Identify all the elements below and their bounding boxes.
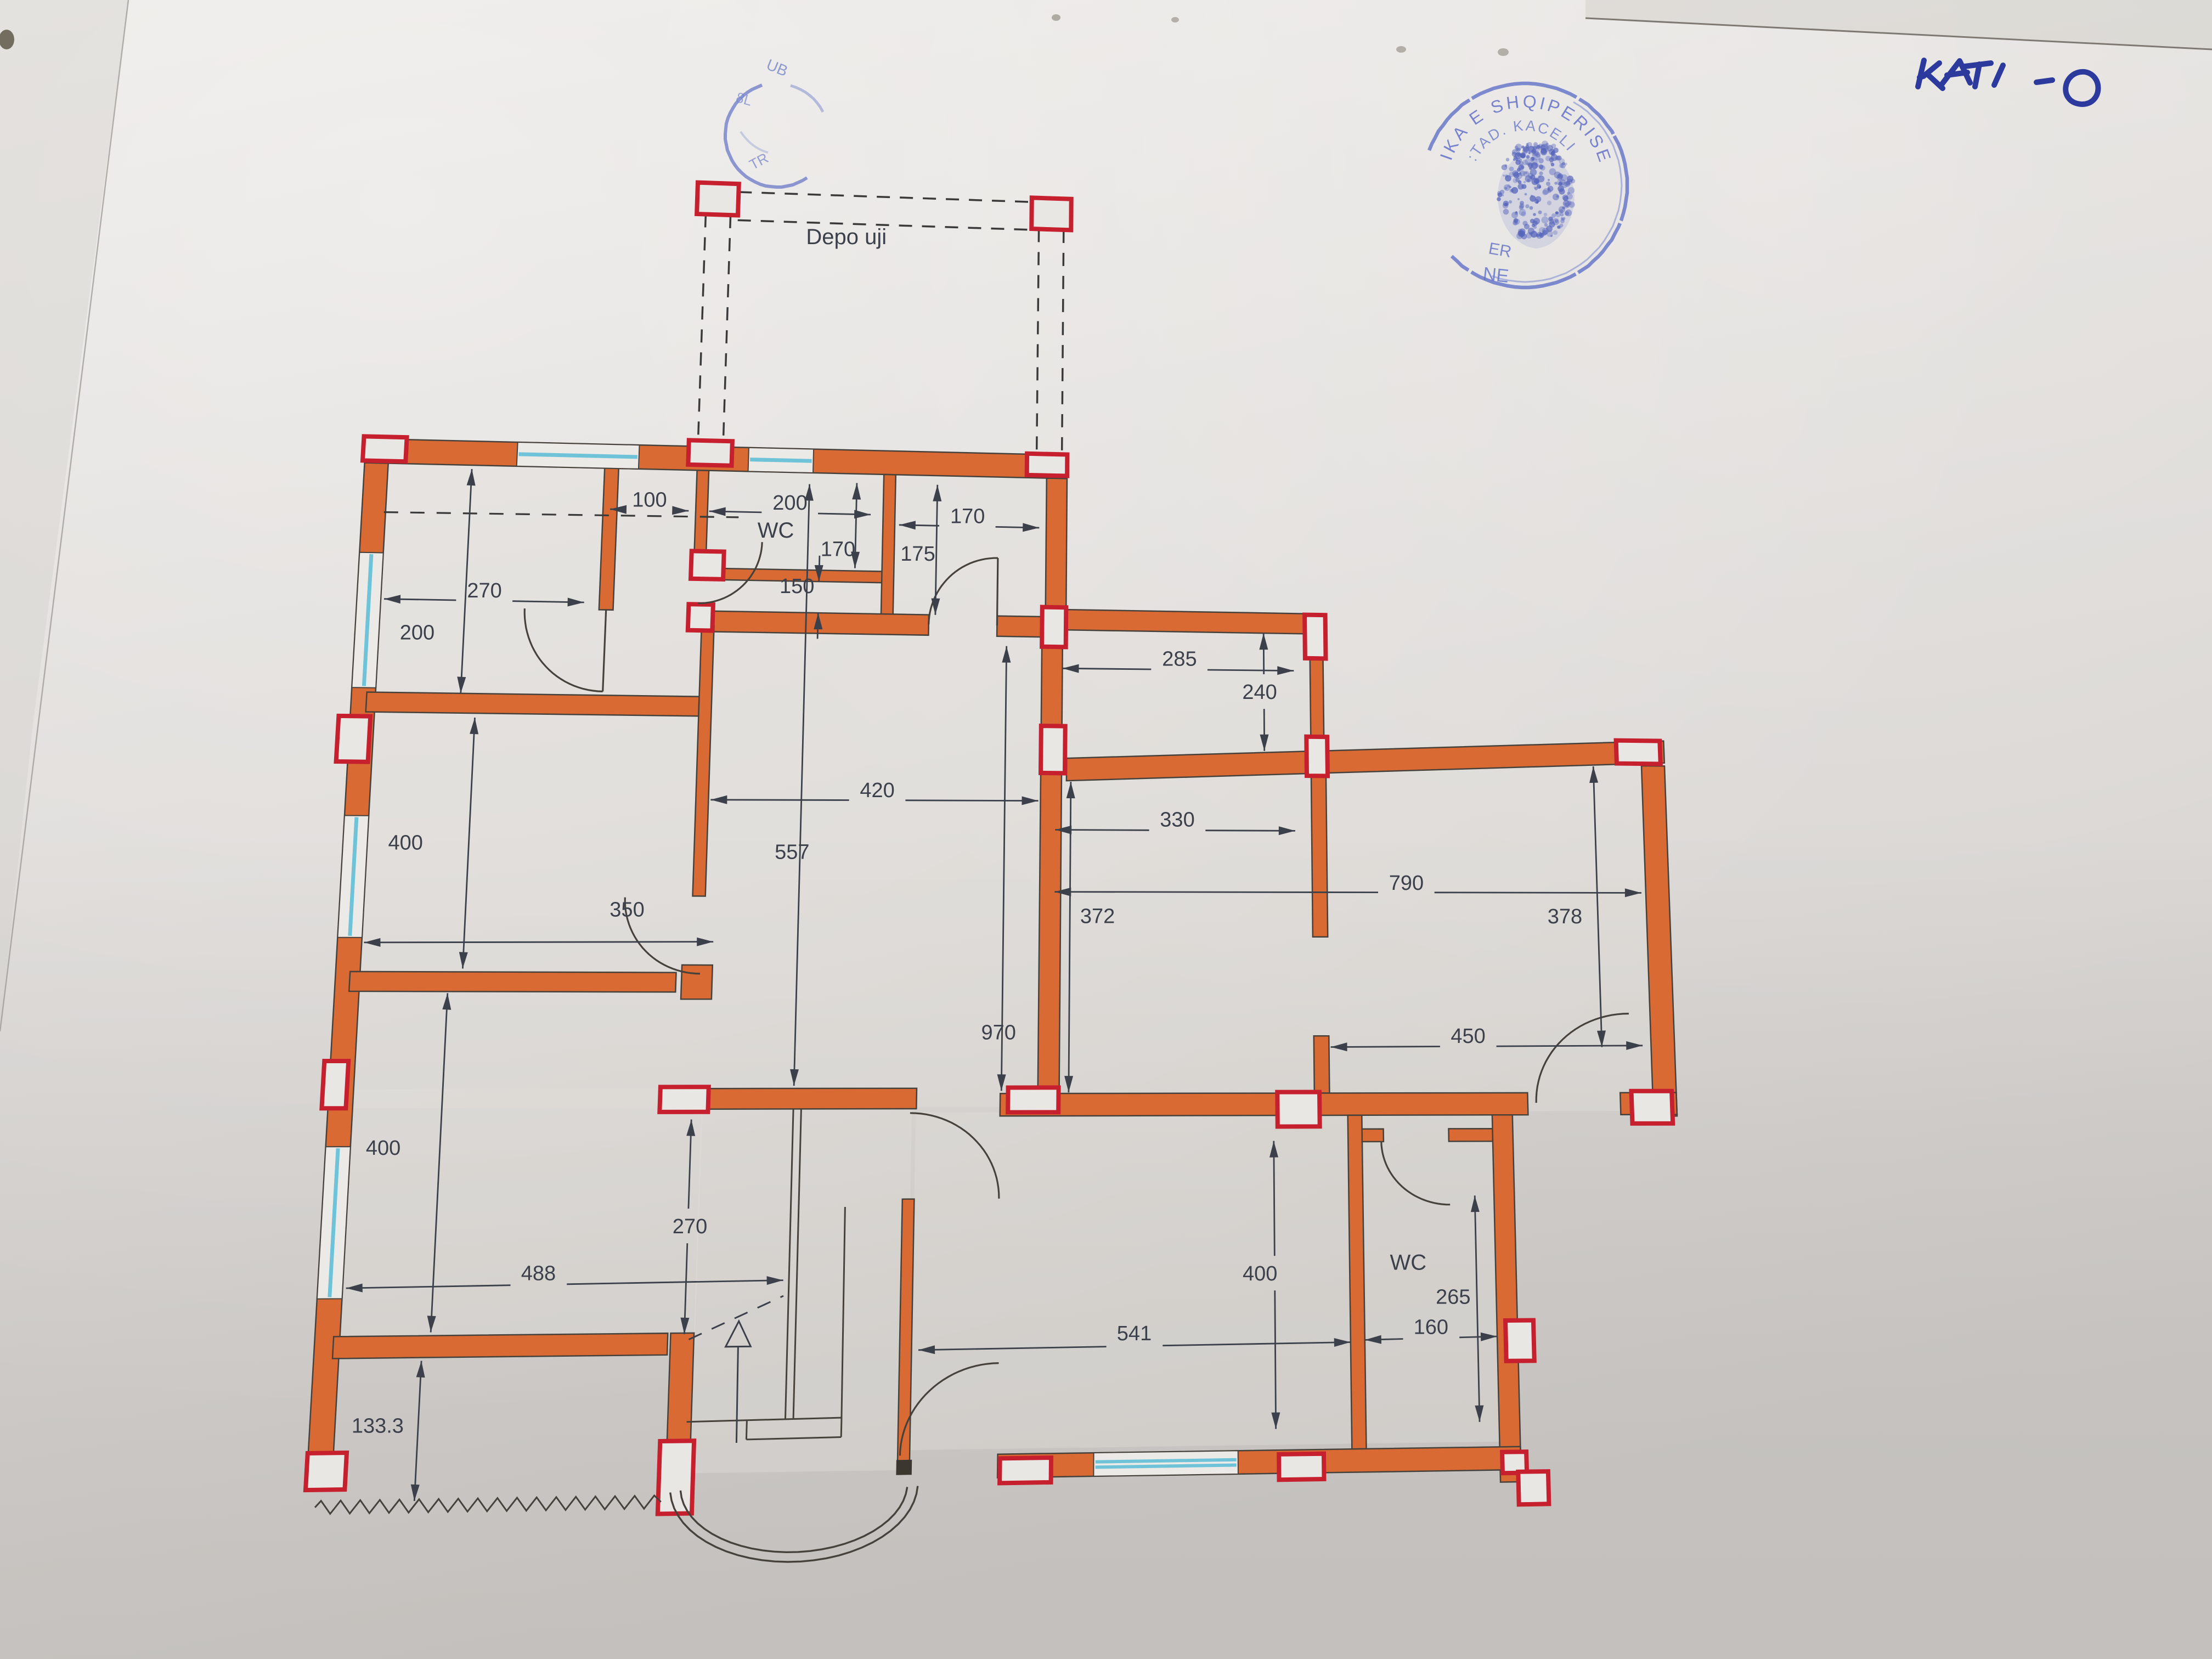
svg-text:WC: WC [1390, 1251, 1426, 1275]
svg-text:170: 170 [821, 538, 855, 561]
svg-text:160: 160 [1414, 1316, 1448, 1339]
svg-text:350: 350 [610, 898, 644, 921]
svg-text:170: 170 [950, 505, 985, 528]
svg-text:270: 270 [467, 579, 501, 602]
svg-text:270: 270 [673, 1215, 707, 1238]
svg-text:378: 378 [1548, 905, 1582, 928]
svg-text:150: 150 [780, 575, 814, 598]
svg-text:WC: WC [758, 518, 794, 543]
svg-text:557: 557 [775, 841, 809, 864]
svg-text:175: 175 [900, 543, 935, 566]
svg-text:240: 240 [1242, 681, 1277, 704]
svg-text:488: 488 [521, 1262, 556, 1285]
svg-text:970: 970 [981, 1022, 1015, 1045]
svg-text:200: 200 [772, 492, 807, 515]
svg-text:450: 450 [1451, 1025, 1485, 1048]
svg-text:330: 330 [1160, 809, 1194, 832]
svg-text:541: 541 [1117, 1322, 1152, 1345]
svg-text:Depo uji: Depo uji [806, 225, 887, 249]
svg-text:372: 372 [1080, 905, 1115, 928]
svg-text:790: 790 [1389, 872, 1424, 895]
svg-text:133.3: 133.3 [352, 1414, 404, 1437]
svg-text:420: 420 [860, 779, 894, 802]
svg-text:265: 265 [1436, 1285, 1470, 1308]
svg-text:200: 200 [400, 622, 435, 645]
svg-text:400: 400 [388, 831, 422, 854]
svg-text:NE: NE [1482, 263, 1510, 287]
svg-text:100: 100 [632, 489, 667, 512]
svg-text:400: 400 [1243, 1262, 1277, 1285]
svg-text:400: 400 [366, 1137, 400, 1160]
svg-text:285: 285 [1162, 648, 1197, 671]
